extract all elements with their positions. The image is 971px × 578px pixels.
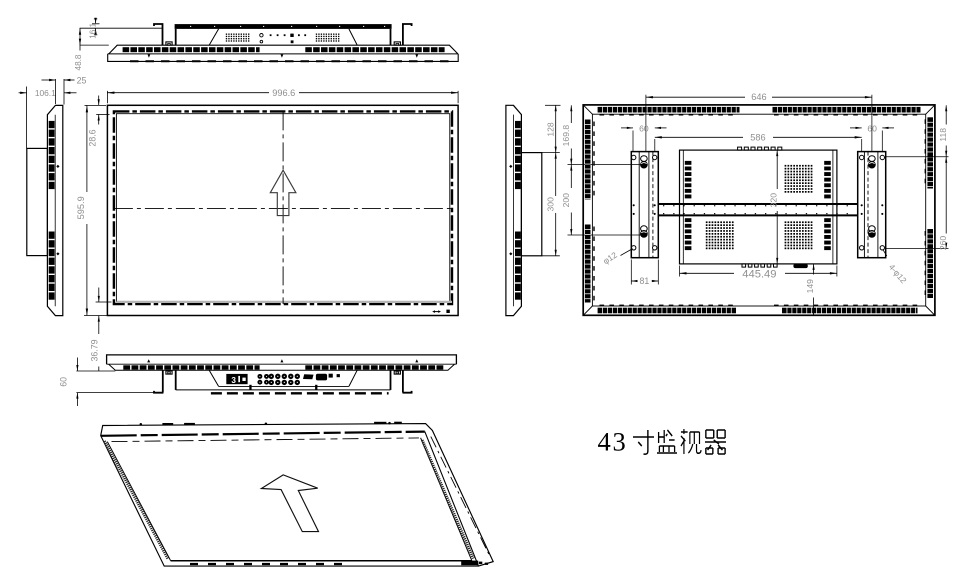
svg-text:36.79: 36.79 — [90, 339, 100, 361]
svg-text:60: 60 — [639, 123, 649, 133]
svg-text:118: 118 — [938, 128, 948, 142]
svg-text:445.49: 445.49 — [742, 269, 776, 281]
svg-text:43: 43 — [598, 427, 628, 457]
svg-text:646: 646 — [751, 92, 766, 102]
svg-text:595.9: 595.9 — [76, 196, 86, 219]
svg-text:48.8: 48.8 — [74, 54, 83, 70]
svg-text:16.1: 16.1 — [88, 22, 97, 38]
svg-text:300: 300 — [546, 197, 556, 212]
svg-text:128: 128 — [546, 122, 556, 137]
svg-text:586: 586 — [750, 133, 765, 143]
svg-text:25: 25 — [77, 75, 87, 85]
svg-text:3: 3 — [231, 376, 236, 385]
svg-text:169.8: 169.8 — [561, 125, 571, 147]
svg-text:320: 320 — [769, 193, 779, 208]
svg-text:28.6: 28.6 — [87, 129, 97, 146]
svg-text:149: 149 — [805, 279, 815, 294]
svg-text:200: 200 — [561, 193, 571, 208]
svg-text:60: 60 — [867, 123, 877, 133]
svg-text:81: 81 — [640, 276, 650, 286]
svg-text:996.6: 996.6 — [272, 88, 295, 98]
svg-text:260: 260 — [938, 236, 948, 251]
svg-text:60: 60 — [59, 377, 69, 387]
svg-text:106.1: 106.1 — [35, 88, 56, 98]
